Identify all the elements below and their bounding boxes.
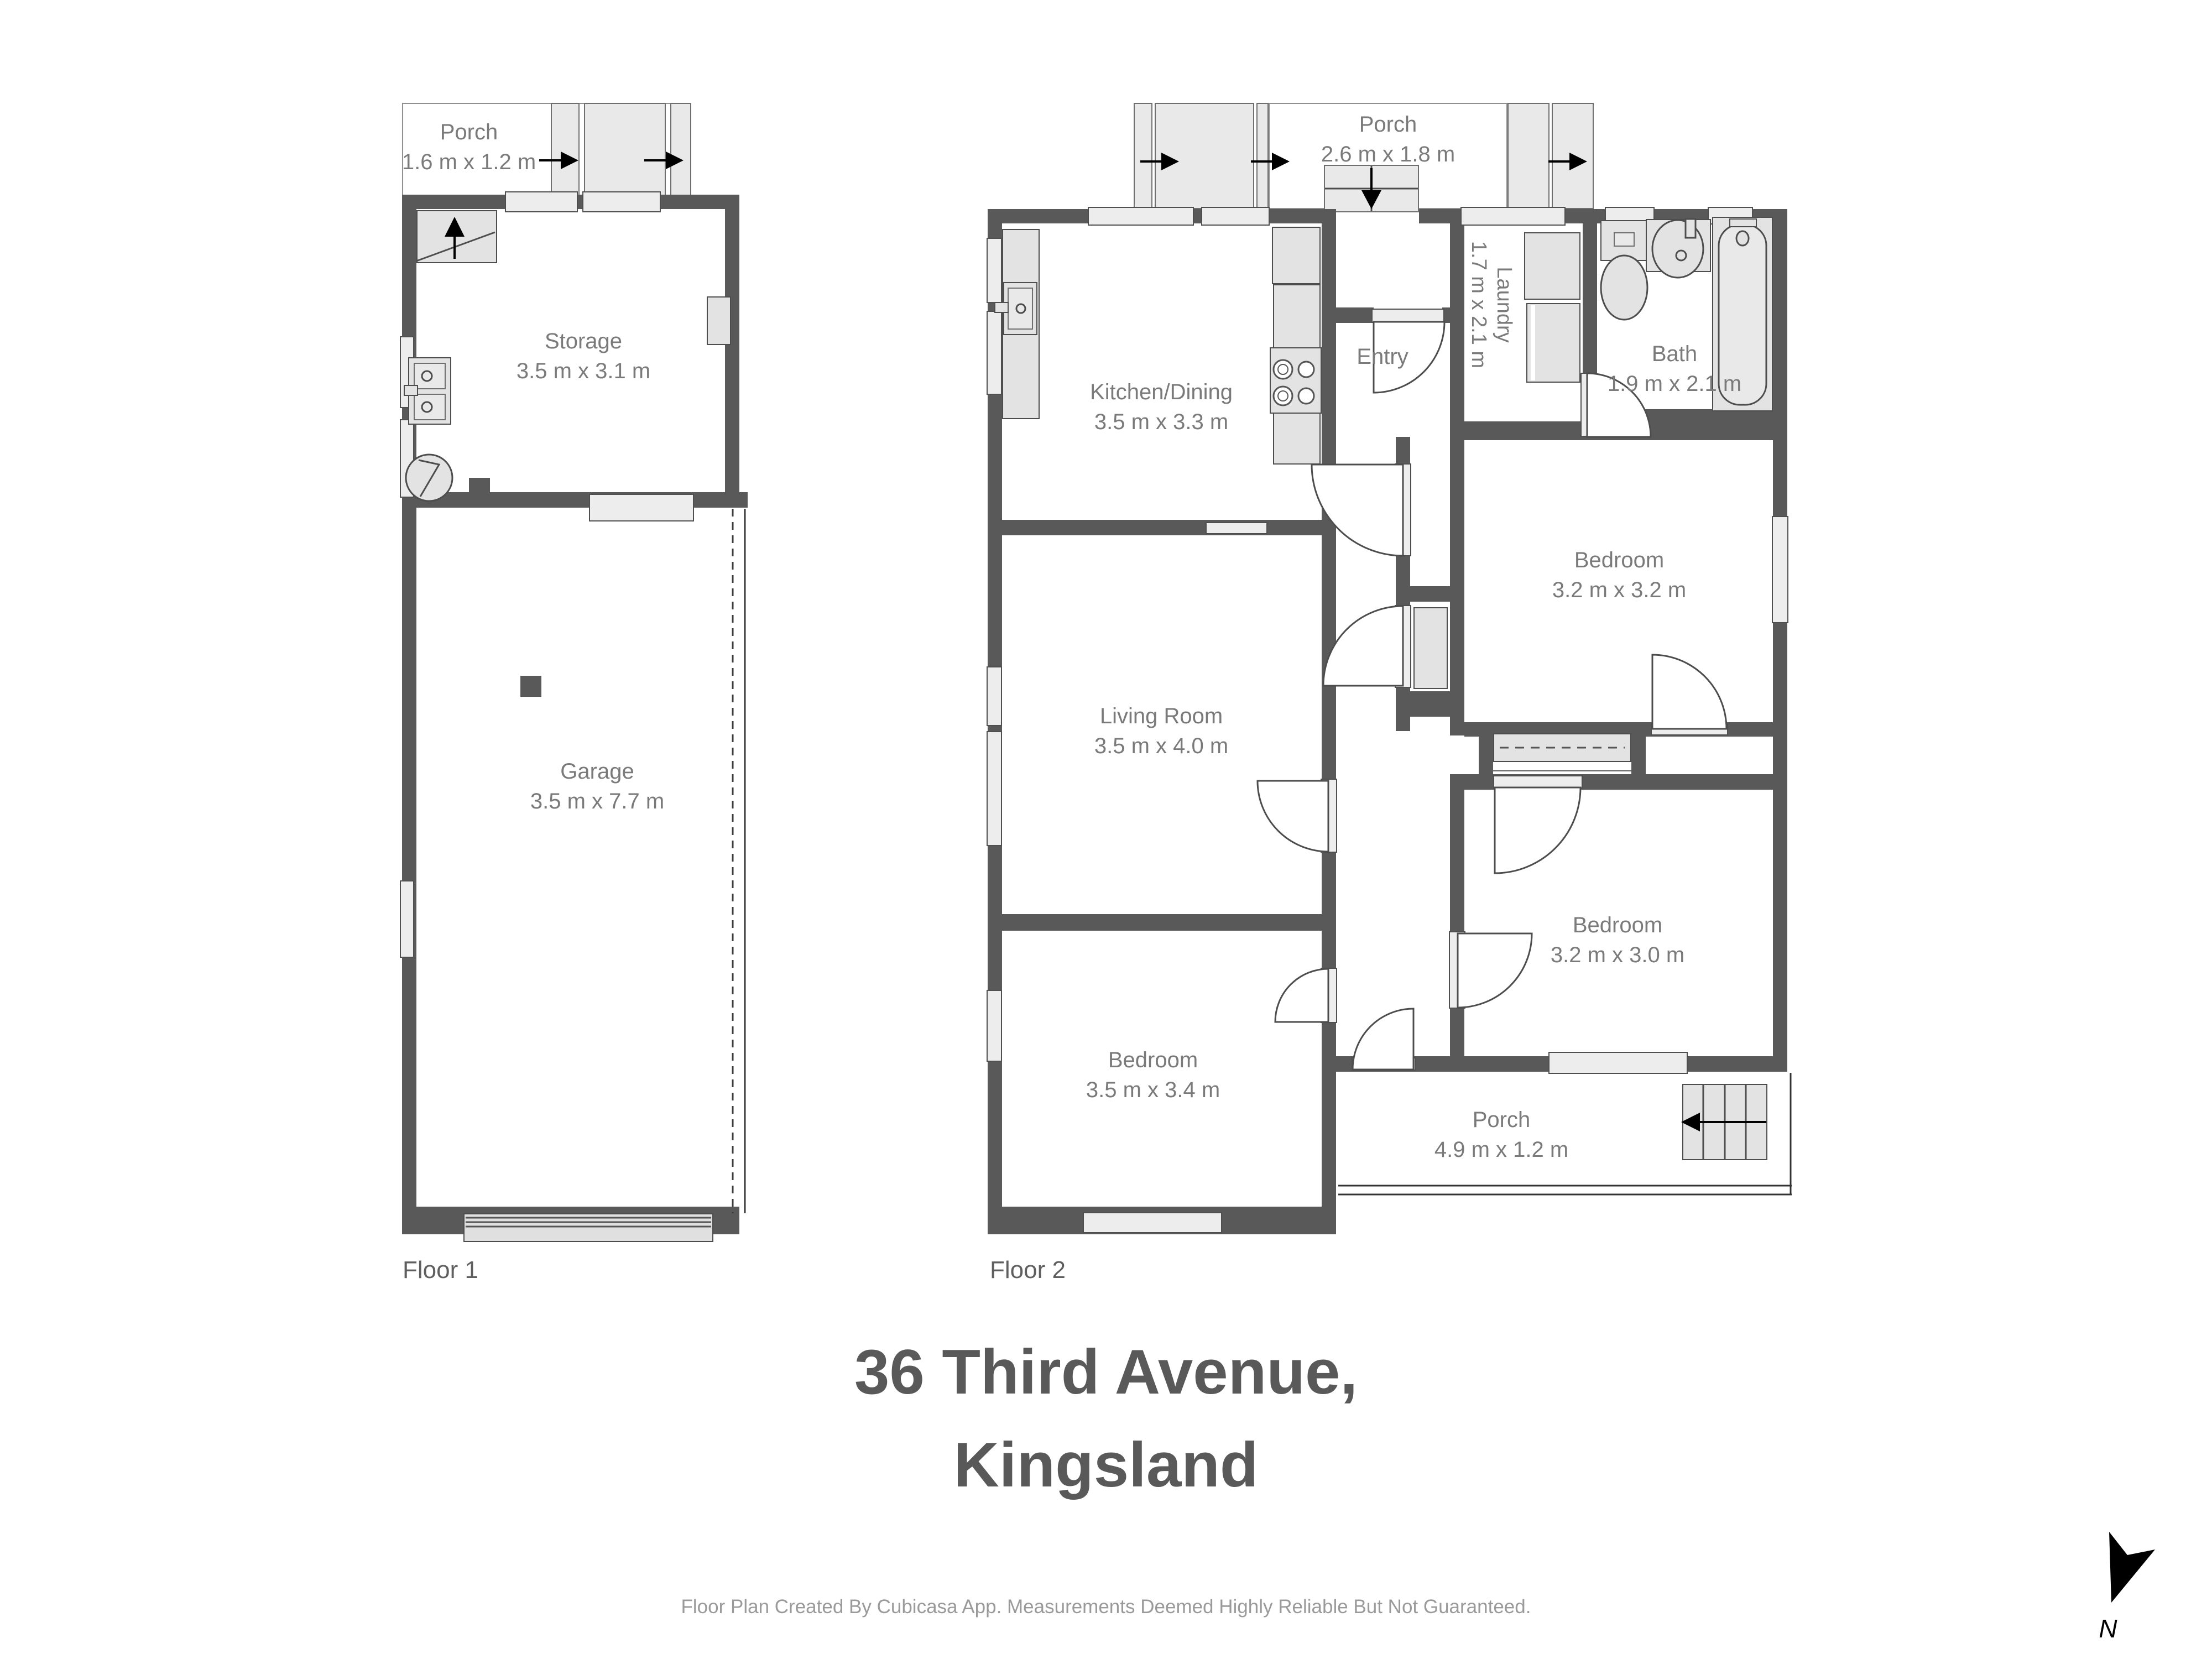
window xyxy=(1201,207,1270,226)
closet-divider-wall xyxy=(1410,586,1464,602)
floor1-divider-wall xyxy=(402,492,748,508)
closet-door-threshold xyxy=(1395,463,1411,556)
disclaimer-text: Floor Plan Created By Cubicasa App. Meas… xyxy=(0,1596,2212,1618)
window xyxy=(1460,207,1566,226)
room-label-garage: Garage 3.5 m x 7.7 m xyxy=(459,757,735,816)
pass-through-window xyxy=(1206,522,1267,534)
window xyxy=(987,238,1002,303)
heater-bolt-icon xyxy=(419,460,439,497)
entry-wall-stub xyxy=(1322,307,1374,323)
room-name: Entry xyxy=(1300,342,1465,372)
north-label: N xyxy=(2091,1614,2125,1644)
title-line1: 36 Third Avenue, xyxy=(553,1326,1659,1419)
window xyxy=(505,191,578,212)
room-dims: 3.5 m x 3.4 m xyxy=(1015,1075,1291,1105)
room-name: Bedroom xyxy=(1015,1045,1291,1075)
toilet-bowl-icon xyxy=(1601,255,1647,320)
room-name: Porch xyxy=(1363,1105,1640,1135)
window xyxy=(400,419,414,498)
living-door-threshold xyxy=(1321,779,1337,853)
floor-plan-canvas: Porch 1.6 m x 1.2 m Storage 3.5 m x 3.1 … xyxy=(0,0,2212,1659)
closet-cabinet-icon xyxy=(1413,607,1448,689)
living-hall-wall xyxy=(1322,535,1336,1234)
room-name: Bedroom xyxy=(1481,545,1757,575)
room-dims: 3.5 m x 3.3 m xyxy=(1023,407,1300,437)
garage-door-icon xyxy=(463,1213,713,1242)
wardrobe-right-wall xyxy=(1631,731,1646,778)
stairs-icon xyxy=(1682,1084,1767,1160)
door-swing-icon xyxy=(1652,655,1726,729)
floor1-label: Floor 1 xyxy=(403,1256,478,1284)
room-dims: 2.6 m x 1.8 m xyxy=(1250,139,1526,169)
room-label-laundry: Laundry 1.7 m x 2.1 m xyxy=(1466,227,1517,382)
room-dims: 1.7 m x 2.1 m xyxy=(1466,227,1491,382)
room-name: Porch xyxy=(1250,109,1526,139)
floor2-right-wall xyxy=(1773,209,1787,1072)
faucet-icon xyxy=(994,302,1009,313)
window xyxy=(1548,1052,1688,1074)
bedroom2-left-wall xyxy=(1450,774,1464,1056)
laundry-left-wall xyxy=(1450,209,1464,437)
sink-basin-icon xyxy=(414,363,446,389)
bedroom2-door-threshold xyxy=(1493,775,1583,789)
room-dims: 1.9 m x 2.1 m xyxy=(1536,369,1813,399)
room-name: Living Room xyxy=(1023,701,1300,731)
title-line2: Kingsland xyxy=(553,1419,1659,1512)
room-name: Porch xyxy=(331,117,607,147)
room-label-bedroom2: Bedroom 3.2 m x 3.0 m xyxy=(1479,910,1756,970)
bedroom3-door-threshold xyxy=(1321,968,1337,1023)
window xyxy=(987,731,1002,846)
room-dims: 3.2 m x 3.0 m xyxy=(1479,940,1756,970)
room-name: Bath xyxy=(1536,339,1813,369)
porch-door-threshold xyxy=(1352,1057,1416,1071)
bedroom1-top-wall xyxy=(1464,425,1787,440)
wardrobe-left-wall xyxy=(1479,731,1493,778)
room-label-bath: Bath 1.9 m x 2.1 m xyxy=(1536,339,1813,399)
wardrobe-line xyxy=(1493,770,1631,771)
page-title: 36 Third Avenue, Kingsland xyxy=(553,1326,1659,1512)
window xyxy=(987,990,1002,1062)
kitchen-counter-icon xyxy=(1273,284,1321,349)
room-dims: 3.2 m x 3.2 m xyxy=(1481,575,1757,605)
room-dims: 4.9 m x 1.2 m xyxy=(1363,1135,1640,1165)
door-threshold xyxy=(589,494,694,521)
entry-steps-icon xyxy=(1324,165,1419,212)
window xyxy=(987,311,1002,395)
room-label-bedroom3: Bedroom 3.5 m x 3.4 m xyxy=(1015,1045,1291,1105)
bedroom1-left-wall xyxy=(1450,425,1464,735)
stairs-icon xyxy=(416,210,497,263)
room-label-porch-f2: Porch 2.6 m x 1.8 m xyxy=(1250,109,1526,169)
north-arrow-icon xyxy=(2109,1532,2155,1603)
room-label-living: Living Room 3.5 m x 4.0 m xyxy=(1023,701,1300,761)
window xyxy=(1088,207,1194,226)
closet-door-threshold xyxy=(1395,605,1411,688)
faucet-icon xyxy=(404,385,418,396)
floor2-deck-panel xyxy=(1155,103,1254,209)
room-dims: 3.5 m x 7.7 m xyxy=(459,786,735,816)
floor1-right-wall-storage xyxy=(725,195,739,508)
room-dims: 1.6 m x 1.2 m xyxy=(331,147,607,177)
bedroom2-door-threshold xyxy=(1449,931,1465,1009)
closet-bottom-wall xyxy=(1396,691,1464,717)
bath-bottom-wall xyxy=(1590,409,1787,425)
entry-door-threshold xyxy=(1371,309,1444,323)
window xyxy=(582,191,661,212)
room-label-storage: Storage 3.5 m x 3.1 m xyxy=(445,326,722,386)
kitchen-sink-basin-icon xyxy=(1008,288,1033,330)
sliding-wardrobe-icon xyxy=(1493,733,1631,762)
floor2-deck-panel xyxy=(1134,103,1152,209)
wall-stub xyxy=(469,478,490,493)
door-swing-icon xyxy=(1495,787,1580,873)
room-name: Bedroom xyxy=(1479,910,1756,940)
kitchen-living-wall xyxy=(988,520,1336,535)
bedroom1-door-threshold xyxy=(1651,723,1728,735)
washer-icon xyxy=(1524,232,1580,300)
floor2-deck-panel xyxy=(1552,103,1594,209)
room-dims: 3.5 m x 3.1 m xyxy=(445,356,722,386)
window xyxy=(1772,516,1788,623)
room-name: Laundry xyxy=(1491,227,1517,382)
room-label-bedroom1: Bedroom 3.2 m x 3.2 m xyxy=(1481,545,1757,605)
kitchen-cabinet-icon xyxy=(1272,227,1321,284)
sink-basin-icon xyxy=(414,394,446,420)
door-swing-icon xyxy=(1258,781,1328,852)
room-name: Storage xyxy=(445,326,722,356)
garage-post xyxy=(520,676,541,697)
room-label-porch-f1: Porch 1.6 m x 1.2 m xyxy=(331,117,607,177)
bath-sink-counter-icon xyxy=(1646,219,1711,272)
window xyxy=(1083,1212,1222,1233)
room-name: Kitchen/Dining xyxy=(1023,377,1300,407)
room-label-entry: Entry xyxy=(1300,342,1465,372)
toilet-button-icon xyxy=(1614,232,1635,247)
room-label-kitchen: Kitchen/Dining 3.5 m x 3.3 m xyxy=(1023,377,1300,437)
living-bedroom3-wall xyxy=(988,914,1336,931)
window xyxy=(400,880,414,958)
room-label-porch-bottom: Porch 4.9 m x 1.2 m xyxy=(1363,1105,1640,1165)
room-name: Garage xyxy=(459,757,735,786)
floor1-deck-panel xyxy=(670,103,691,197)
window xyxy=(987,666,1002,726)
floor2-label: Floor 2 xyxy=(990,1256,1066,1284)
room-dims: 3.5 m x 4.0 m xyxy=(1023,731,1300,761)
